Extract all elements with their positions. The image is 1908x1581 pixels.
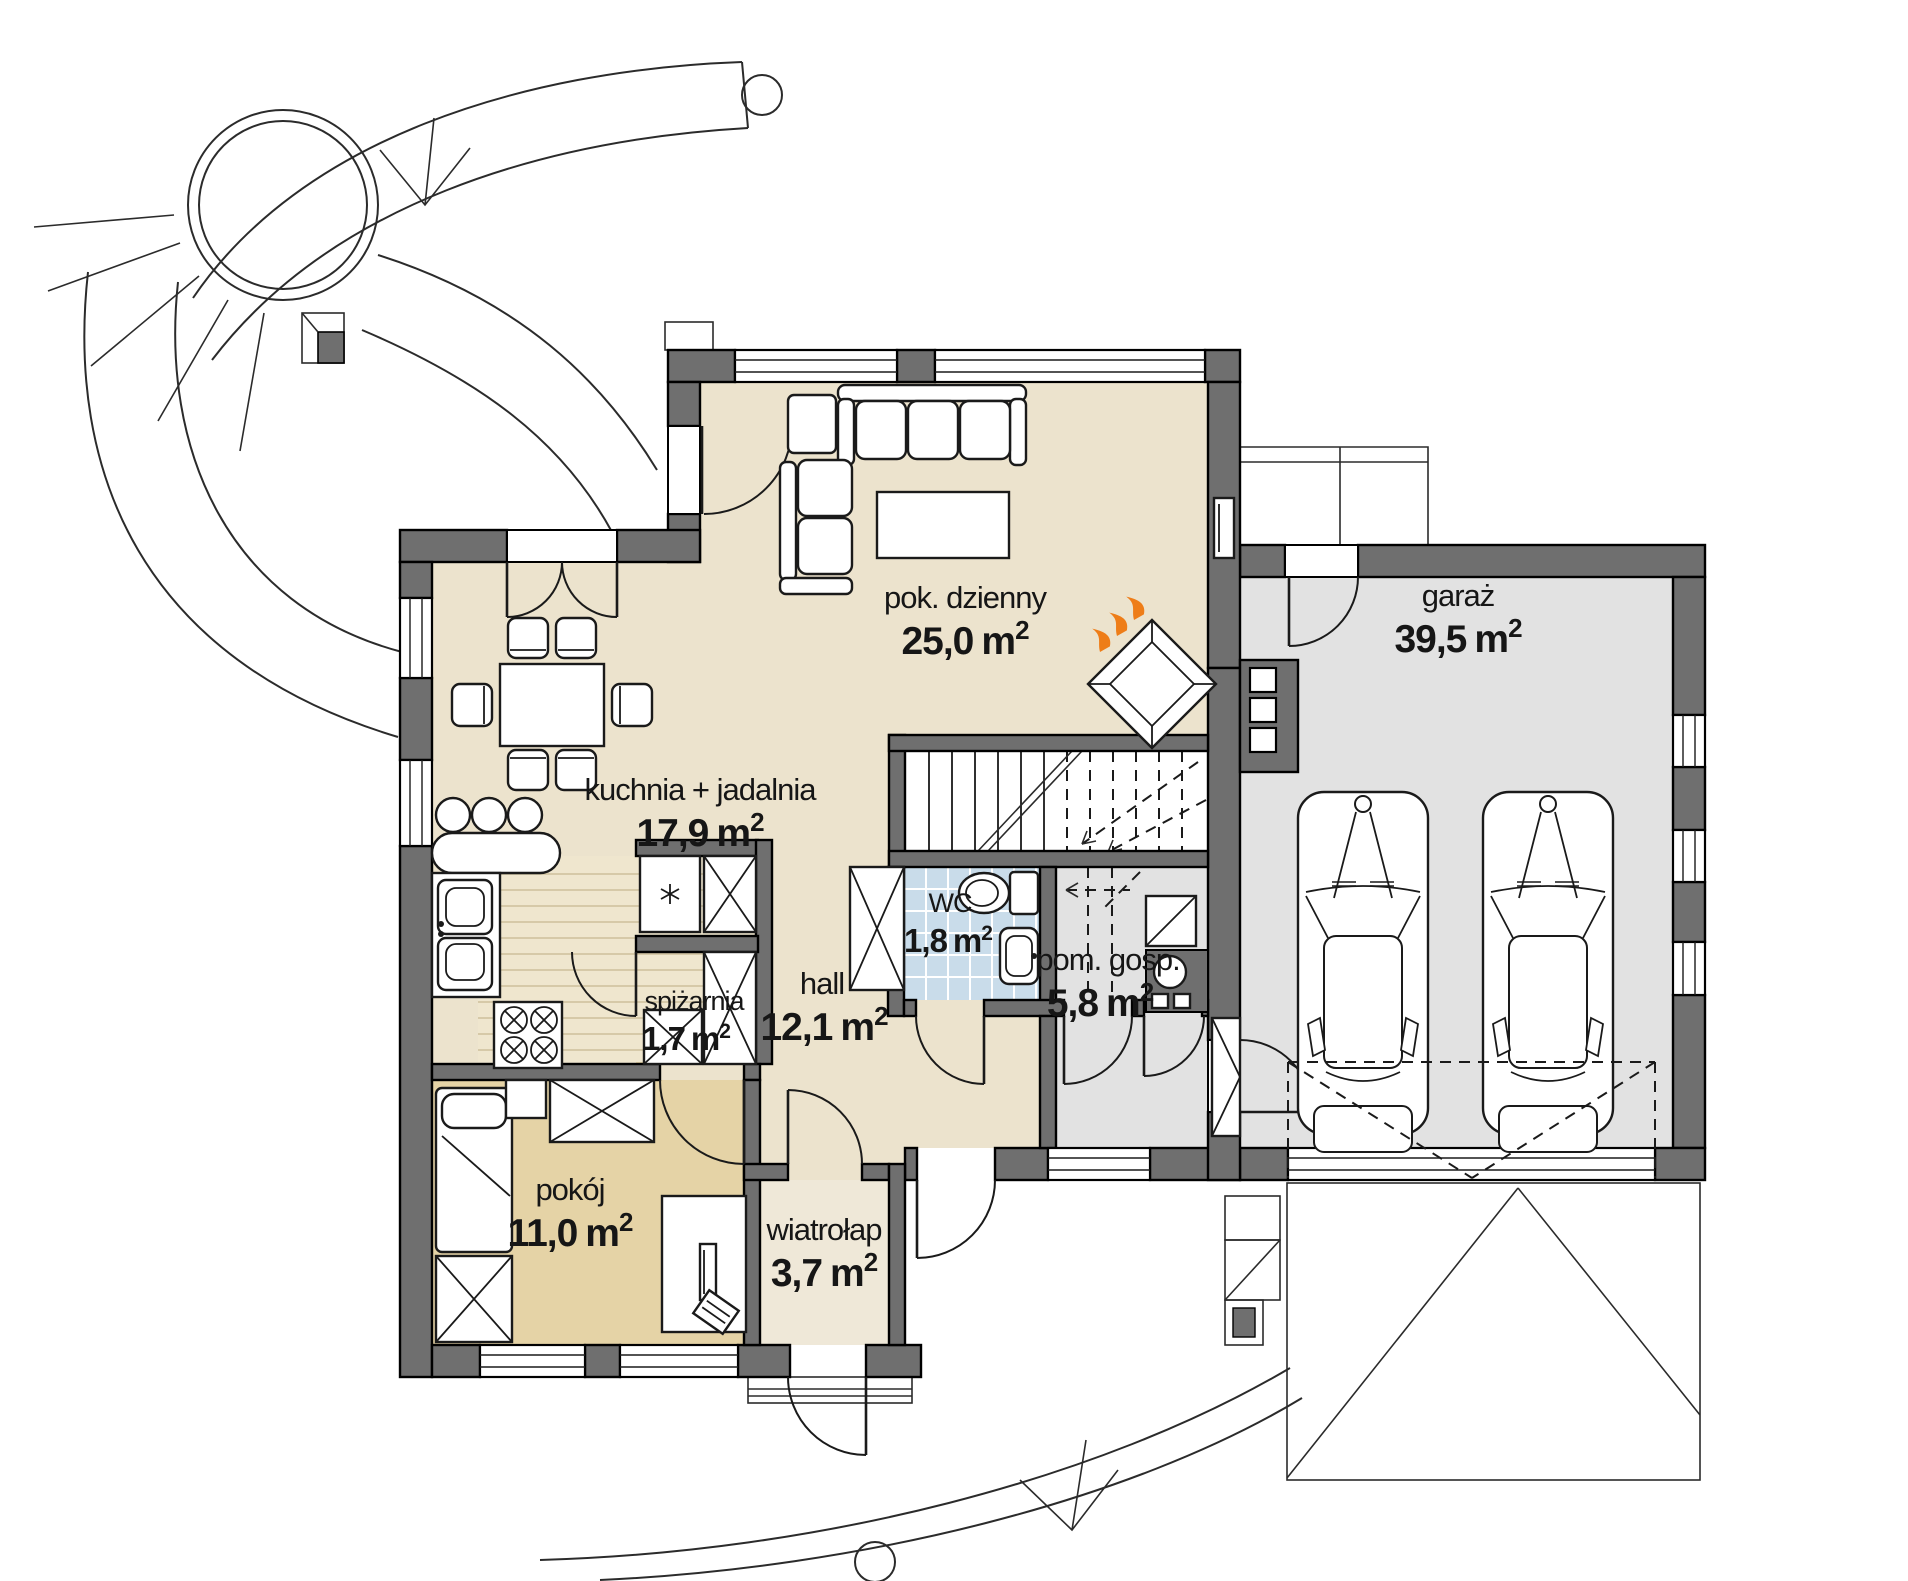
tv-panel [1214,498,1234,558]
svg-text:wiatrołap: wiatrołap [765,1212,881,1247]
floor-plan-drawing: pok. dzienny 25,0m2 kuchnia + jadalnia 1… [0,0,1908,1581]
svg-text:pom. gosp.: pom. gosp. [1036,942,1179,977]
svg-text:WC: WC [929,888,972,918]
chimney-niches [1250,668,1276,752]
floor-plan-page: pok. dzienny 25,0m2 kuchnia + jadalnia 1… [0,0,1908,1581]
svg-text:12,1m2: 12,1m2 [760,1001,888,1049]
svg-text:17,9m2: 17,9m2 [636,807,764,855]
svg-text:11,0m2: 11,0m2 [508,1207,633,1255]
svg-text:spiżarnia: spiżarnia [644,986,745,1016]
coffee-table [877,492,1009,558]
svg-text:pokój: pokój [535,1172,604,1207]
svg-text:garaż: garaż [1422,578,1495,613]
svg-text:25,0m2: 25,0m2 [901,615,1029,663]
svg-text:kuchnia + jadalnia: kuchnia + jadalnia [584,772,817,807]
svg-text:39,5m2: 39,5m2 [1394,613,1522,661]
svg-text:pok. dzienny: pok. dzienny [884,580,1048,615]
svg-text:hall: hall [800,966,844,1001]
floor-stairs [905,751,1208,851]
hall-closet [850,867,904,990]
